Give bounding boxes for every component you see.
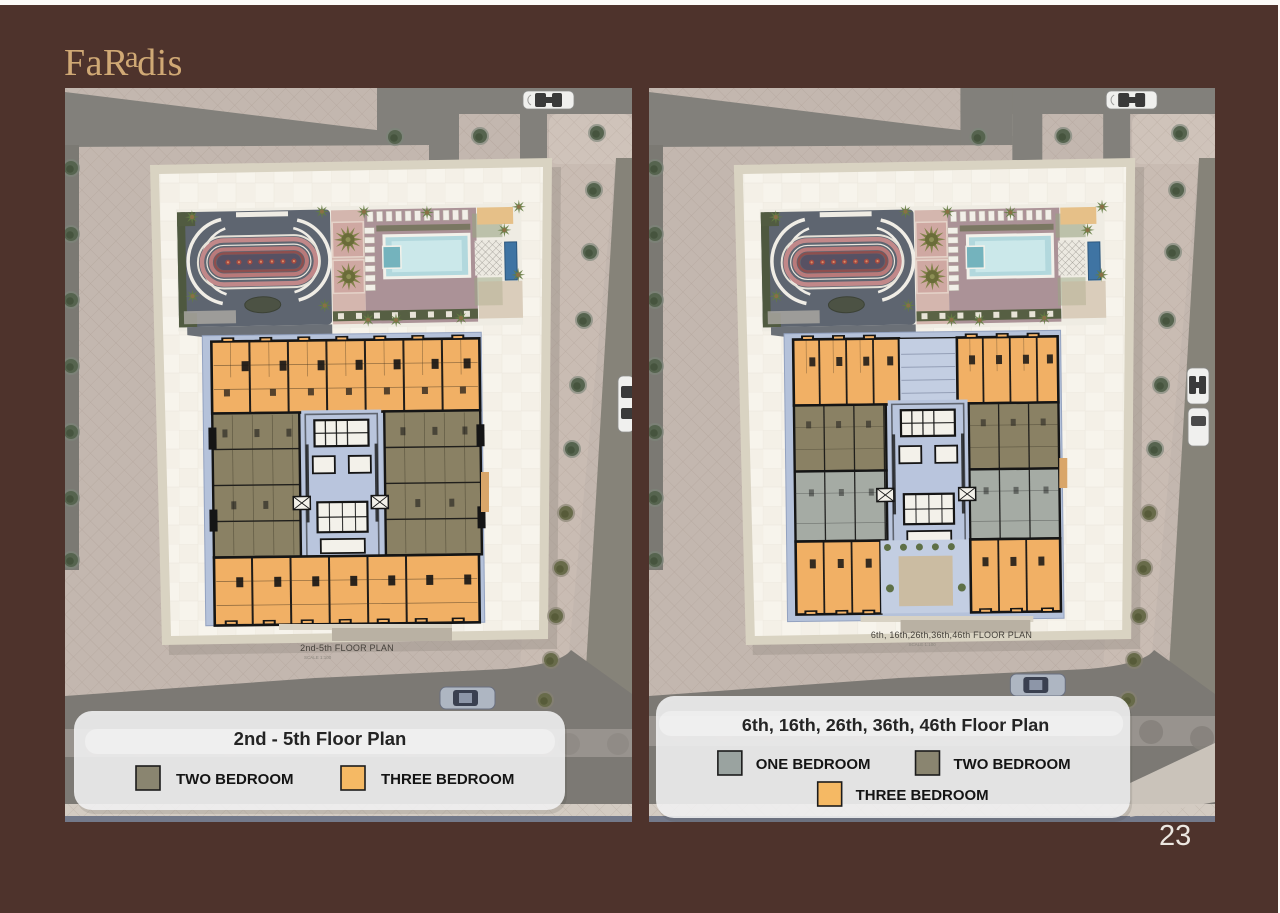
- svg-text:2nd - 5th Floor Plan: 2nd - 5th Floor Plan: [234, 728, 407, 749]
- svg-text:SCALE 1:100: SCALE 1:100: [909, 642, 937, 647]
- svg-text:ONE BEDROOM: ONE BEDROOM: [756, 756, 871, 773]
- svg-text:TWO BEDROOM: TWO BEDROOM: [953, 756, 1070, 773]
- svg-text:TWO BEDROOM: TWO BEDROOM: [176, 771, 294, 788]
- svg-text:THREE BEDROOM: THREE BEDROOM: [381, 771, 514, 788]
- svg-text:2nd-5th FLOOR PLAN: 2nd-5th FLOOR PLAN: [300, 643, 394, 653]
- svg-text:SCALE 1:100: SCALE 1:100: [304, 655, 332, 660]
- svg-text:THREE BEDROOM: THREE BEDROOM: [856, 787, 989, 804]
- svg-text:6th, 16th, 26th, 36th, 46th Fl: 6th, 16th, 26th, 36th, 46th Floor Plan: [742, 715, 1049, 735]
- svg-text:6th, 16th,26th,36th,46th FLOOR: 6th, 16th,26th,36th,46th FLOOR PLAN: [871, 630, 1032, 640]
